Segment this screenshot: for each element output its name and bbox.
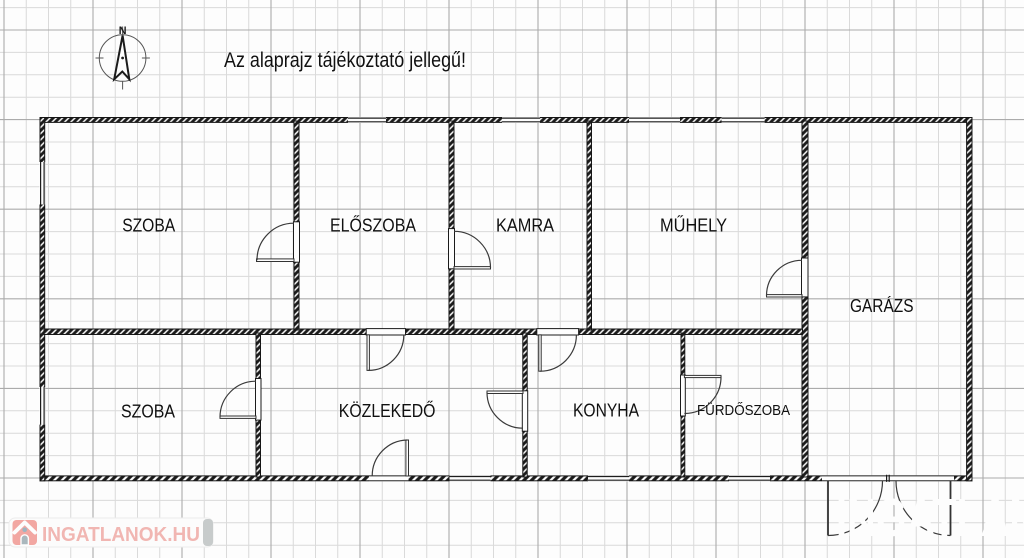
svg-text:KAMRA: KAMRA bbox=[496, 214, 555, 235]
svg-text:GARÁZS: GARÁZS bbox=[850, 295, 914, 316]
svg-text:ELŐSZOBA: ELŐSZOBA bbox=[330, 214, 417, 235]
svg-text:SZOBA: SZOBA bbox=[121, 401, 176, 422]
svg-text:KÖZLEKEDŐ: KÖZLEKEDŐ bbox=[339, 400, 436, 422]
svg-text:MŰHELY: MŰHELY bbox=[660, 214, 727, 235]
svg-text:INGATLANOK.HU: INGATLANOK.HU bbox=[42, 523, 200, 546]
svg-text:Az alaprajz tájékoztató jelleg: Az alaprajz tájékoztató jellegű! bbox=[224, 48, 466, 72]
svg-text:SZOBA: SZOBA bbox=[122, 214, 176, 235]
svg-text:INGATLANOK.HU: INGATLANOK.HU bbox=[836, 488, 1024, 548]
svg-text:FÜRDŐSZOBA: FÜRDŐSZOBA bbox=[697, 401, 790, 419]
svg-text:KONYHA: KONYHA bbox=[573, 400, 640, 421]
svg-text:N: N bbox=[119, 25, 127, 37]
